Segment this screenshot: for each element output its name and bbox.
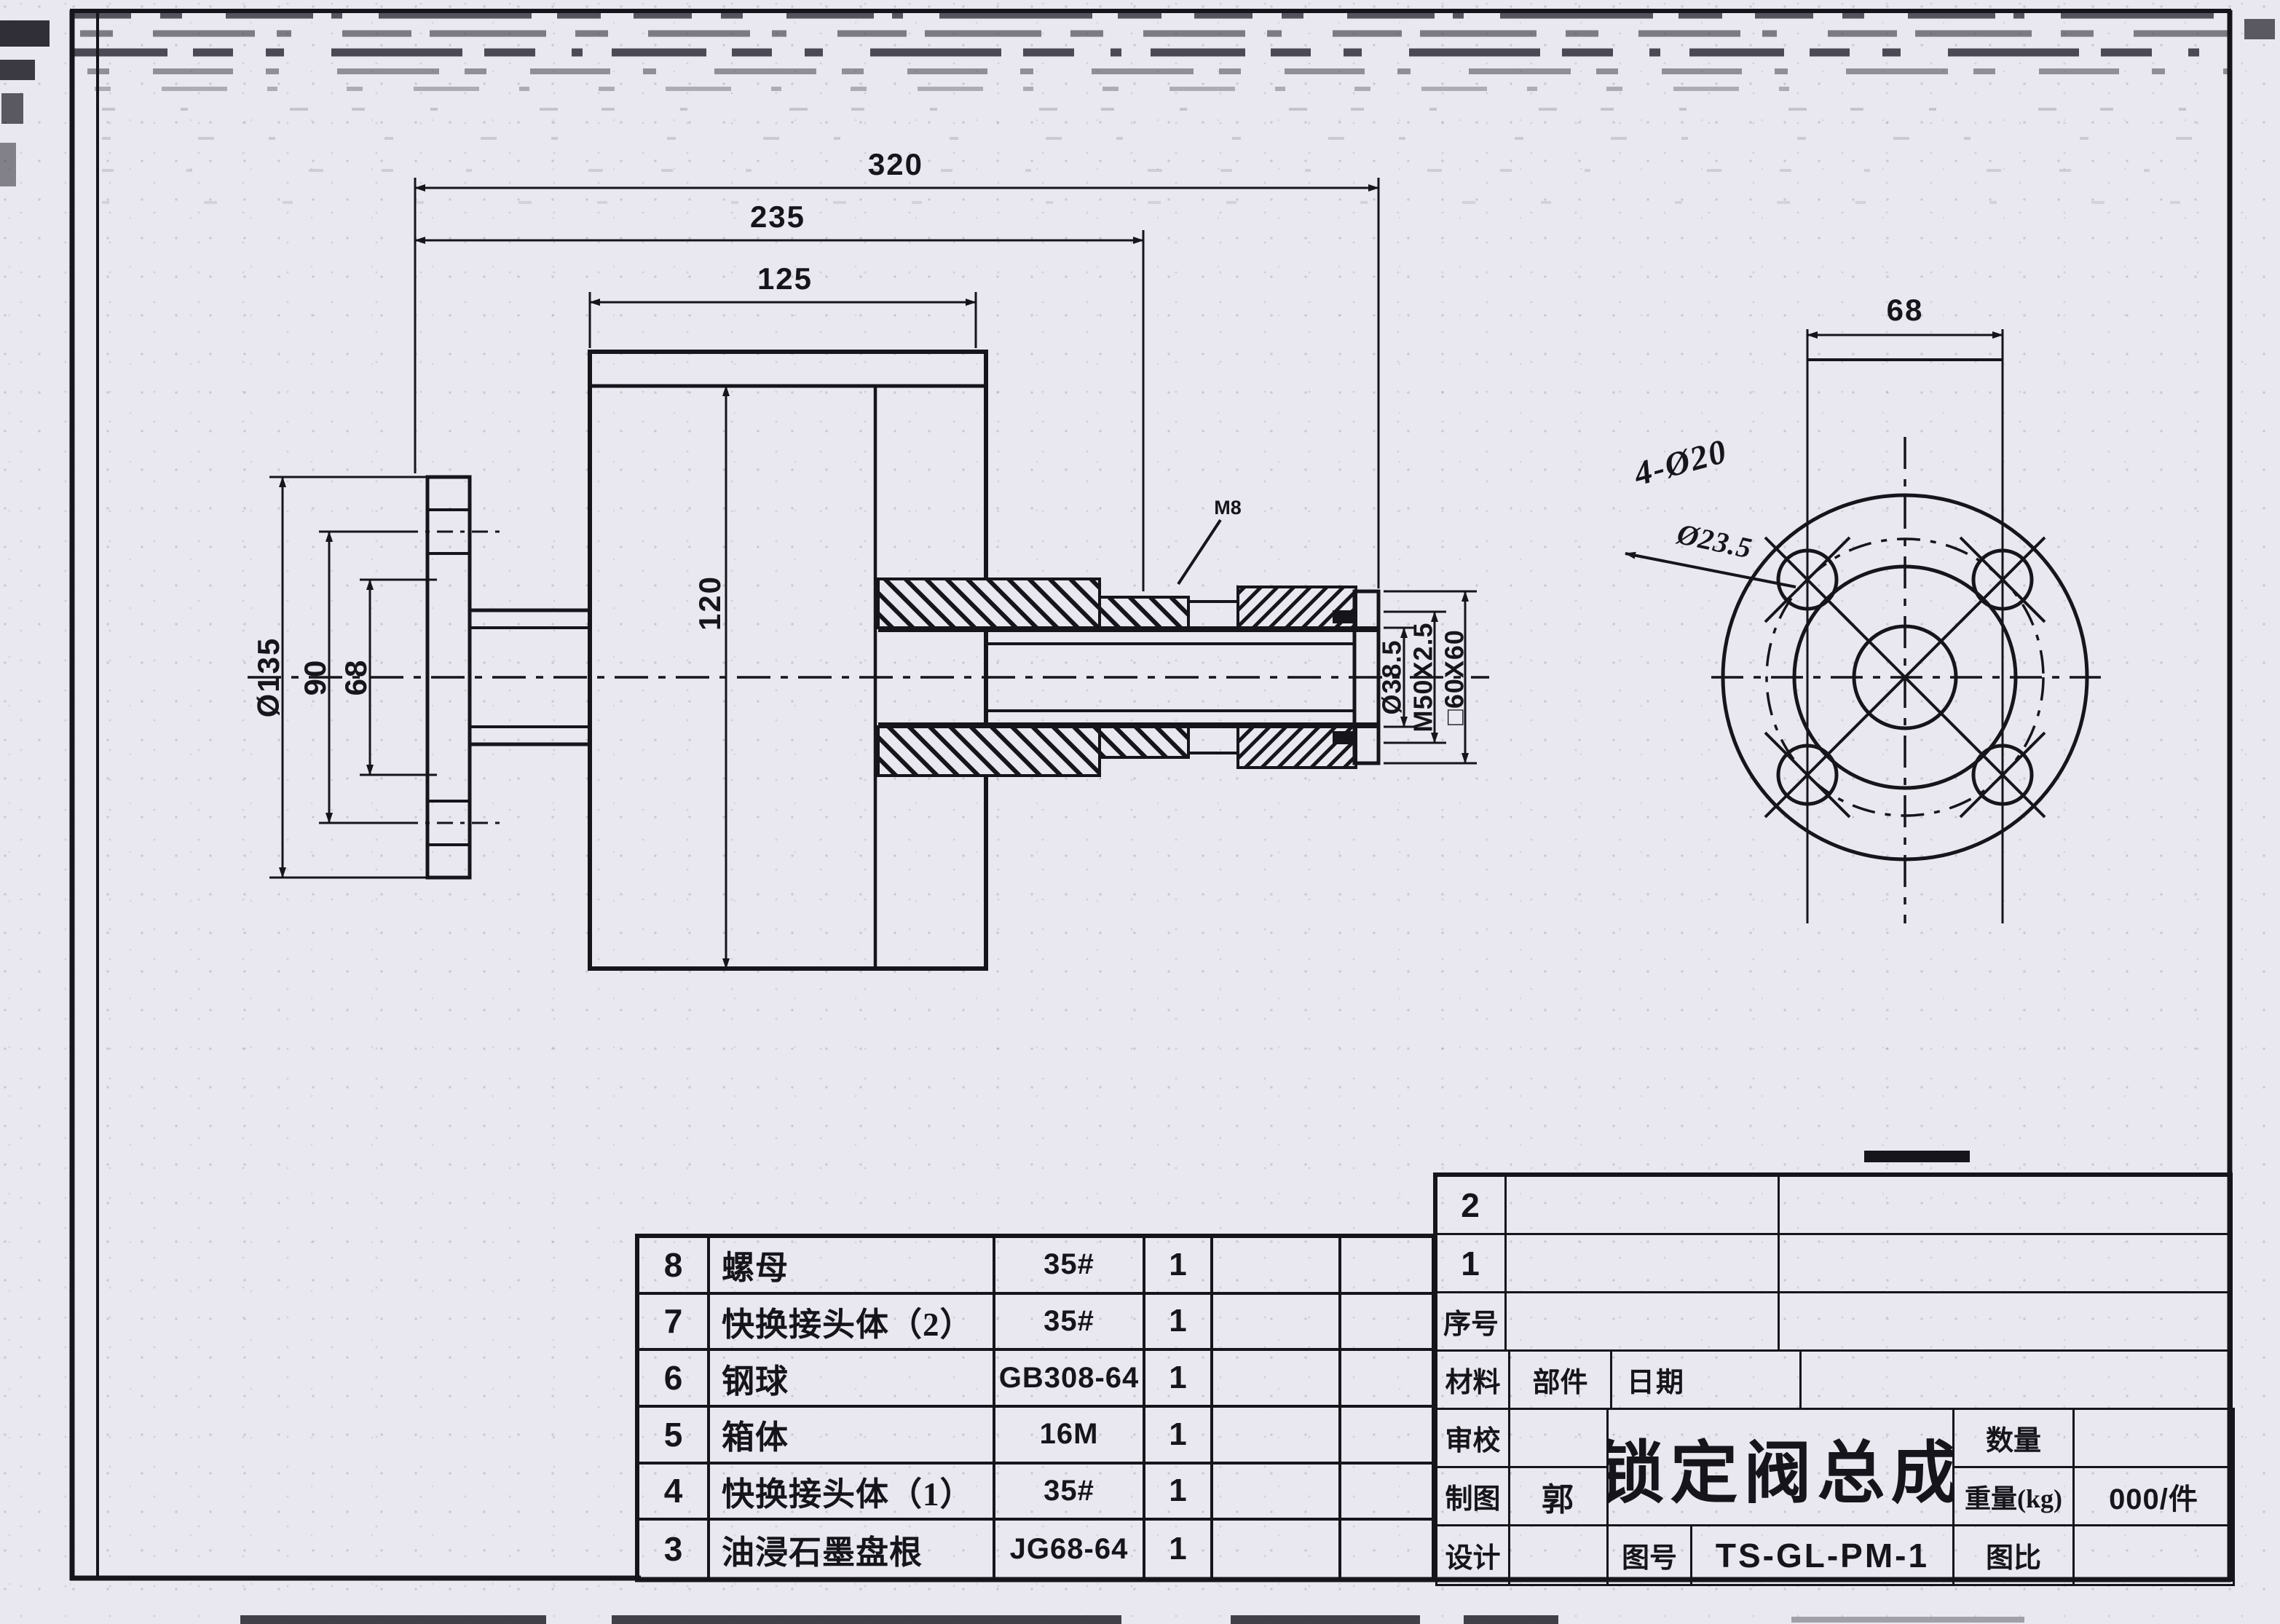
part-row-qty: 1 [1145, 1521, 1213, 1577]
parts-table: 8 螺母 35# 1 7 快换接头体（2） 35# 1 6 钢球 GB308-6… [635, 1234, 1436, 1582]
seq-header-extra [1778, 1291, 2233, 1352]
dim-endview-width-label: 68 [1887, 293, 1924, 327]
part-row-qty: 1 [1145, 1465, 1213, 1521]
part-row-spec: 35# [995, 1295, 1145, 1352]
dim-body-width-label: 125 [757, 261, 813, 296]
weight-label-cell: 重量(kg) [1952, 1466, 2075, 1526]
holes-count-label: 4-Ø20 [1630, 433, 1732, 494]
part-row-empty [1341, 1408, 1432, 1465]
qty-label-cell: 数量 [1952, 1408, 2075, 1468]
dim-hub-label: 68 [339, 659, 373, 696]
part-row-name: 螺母 [710, 1238, 995, 1295]
part-row-spec: 35# [995, 1465, 1145, 1521]
part-row-no: 6 [639, 1351, 710, 1408]
dim-thread-label: M50X2.5 [1408, 622, 1438, 732]
date-label-cell: 日期 [1610, 1349, 1802, 1410]
seq-cell-2-name [1504, 1175, 1780, 1235]
title-block: 2 1 序号 材料 部件 日期 审校 锁定阀总成 数量 制图 郭 重量(kg) … [1433, 1172, 2233, 1582]
dim-square-label: □60X60 [1440, 629, 1470, 725]
dwg-no-label-cell: 图号 [1606, 1524, 1692, 1586]
weight-value-cell: 000/件 [2072, 1466, 2235, 1526]
review-label-cell: 审校 [1435, 1408, 1510, 1468]
dim-mid-label: 235 [750, 200, 805, 234]
part-row-spec: JG68-64 [995, 1521, 1145, 1577]
part-row-no: 5 [639, 1408, 710, 1465]
draft-value-cell: 郭 [1508, 1466, 1609, 1526]
part-row-qty: 1 [1145, 1238, 1213, 1295]
dim-flange-od-label: Ø135 [251, 637, 285, 718]
drawing-sheet: Ø135 90 68 120 320 235 [0, 0, 2280, 1624]
seq-cell-1: 1 [1435, 1233, 1507, 1293]
dwg-no-value-cell: TS-GL-PM-1 [1690, 1524, 1954, 1586]
part-row-name: 箱体 [710, 1408, 995, 1465]
scale-value-cell [2072, 1524, 2235, 1586]
bolt-hole-callout: 4-Ø20 Ø23.5 [1625, 433, 1796, 587]
part-row-name: 油浸石墨盘根 [710, 1521, 995, 1577]
date-value-cell [1799, 1349, 2233, 1410]
design-label-cell: 设计 [1435, 1524, 1510, 1586]
seq-header-cell: 序号 [1435, 1291, 1507, 1352]
dim-bolt-circle-label: 90 [298, 659, 332, 696]
drawing-title: 锁定阀总成 [1606, 1408, 1954, 1526]
part-row-no: 4 [639, 1465, 710, 1521]
seq-cell-1-extra [1778, 1233, 2233, 1293]
part-row-spec: 35# [995, 1238, 1145, 1295]
main-section-view: Ø135 90 68 120 320 235 [248, 147, 1489, 969]
part-row-qty: 1 [1145, 1351, 1213, 1408]
part-row-empty [1213, 1465, 1341, 1521]
part-row-spec: GB308-64 [995, 1351, 1145, 1408]
top-dimensions: 320 235 125 [415, 147, 1378, 591]
dim-bore-label: Ø38.5 [1377, 639, 1407, 714]
draft-label-cell: 制图 [1435, 1466, 1510, 1526]
part-row-no: 3 [639, 1521, 710, 1577]
part-row-empty [1213, 1238, 1341, 1295]
material-label-cell: 材料 [1435, 1349, 1510, 1410]
part-row-empty [1213, 1521, 1341, 1577]
dim-body-height-label: 120 [693, 575, 727, 631]
seq-cell-2-extra [1778, 1175, 2233, 1235]
part-row-name: 快换接头体（1） [710, 1465, 995, 1521]
left-dimensions: Ø135 90 68 [251, 477, 437, 878]
part-row-empty [1341, 1521, 1432, 1577]
part-row-no: 7 [639, 1295, 710, 1352]
part-label-cell: 部件 [1508, 1349, 1612, 1410]
part-row-empty [1213, 1408, 1341, 1465]
flange-end-view: 68 4-Ø20 Ø23.5 [1625, 293, 2101, 923]
seq-cell-2: 2 [1435, 1175, 1507, 1235]
part-row-empty [1213, 1351, 1341, 1408]
part-row-name: 快换接头体（2） [710, 1295, 995, 1352]
label-screw-m8: M8 [1214, 497, 1242, 519]
scale-label-cell: 图比 [1952, 1524, 2075, 1586]
seq-header-name [1504, 1291, 1780, 1352]
coupling-section: M8 [878, 497, 1378, 776]
part-row-empty [1341, 1465, 1432, 1521]
valve-body: 120 [590, 352, 986, 969]
part-row-empty [1341, 1295, 1432, 1352]
qty-value-cell [2072, 1408, 2235, 1468]
part-row-name: 钢球 [710, 1351, 995, 1408]
seq-cell-1-name [1504, 1233, 1780, 1293]
end-dimension-stack: Ø38.5 M50X2.5 □60X60 [1377, 591, 1477, 763]
part-row-spec: 16M [995, 1408, 1145, 1465]
part-row-empty [1341, 1238, 1432, 1295]
part-row-empty [1341, 1351, 1432, 1408]
part-row-qty: 1 [1145, 1295, 1213, 1352]
part-row-no: 8 [639, 1238, 710, 1295]
dim-overall-label: 320 [868, 147, 923, 181]
review-value-cell [1508, 1408, 1609, 1468]
part-row-qty: 1 [1145, 1408, 1213, 1465]
design-value-cell [1508, 1524, 1609, 1586]
part-row-empty [1213, 1295, 1341, 1352]
holes-note-label: Ø23.5 [1673, 517, 1755, 565]
